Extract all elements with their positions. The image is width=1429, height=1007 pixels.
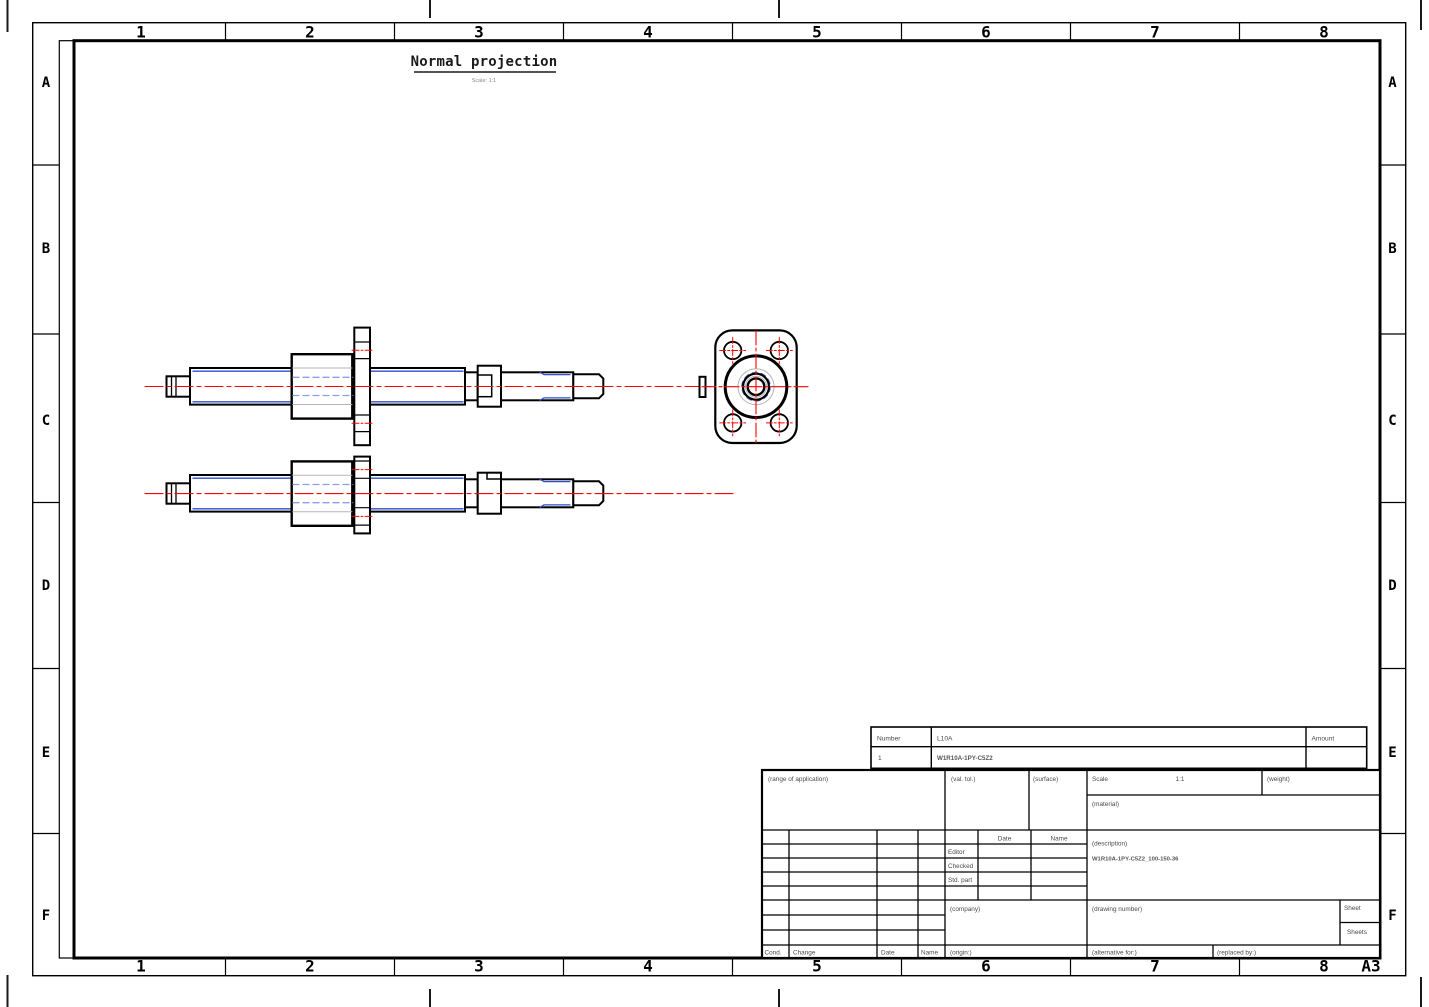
surface-label: (surface)	[1033, 776, 1058, 783]
nut-flange	[354, 457, 370, 534]
parts-col-name: L10A	[937, 736, 953, 743]
part-number: 1	[878, 755, 882, 762]
view-title: Normal projection Scale: 1:1	[411, 54, 558, 84]
zone-col-label: 8	[1319, 23, 1329, 42]
zone-row-label: C	[42, 413, 50, 429]
date-header: Date	[998, 836, 1012, 843]
zone-row-label: D	[42, 578, 50, 594]
scale-label: Scale	[1092, 776, 1108, 783]
title-block: (range of application) (val. tol.) (surf…	[762, 770, 1380, 958]
company-label: (company)	[950, 906, 980, 913]
sheets-label: Sheets	[1347, 929, 1367, 936]
zone-col-label: 7	[1150, 23, 1160, 42]
zone-row-label: A	[42, 75, 51, 91]
sheet-label: Sheet	[1344, 905, 1361, 912]
val-tol-label: (val. tol.)	[951, 776, 976, 783]
projection-views	[145, 328, 810, 534]
alternative-for-label: (alternative for:)	[1092, 950, 1137, 957]
zone-col-label: 4	[643, 23, 653, 42]
checked-label: Checked	[948, 863, 974, 870]
zone-row-label: B	[42, 241, 50, 257]
cond-header: Cond.	[765, 950, 782, 957]
side-view-2[interactable]	[145, 457, 735, 534]
zone-col-label: 3	[474, 23, 484, 42]
zone-row-label: F	[42, 908, 50, 924]
zone-col-label: 2	[305, 23, 315, 42]
zone-col-label: 5	[812, 23, 822, 42]
zone-row-label: E	[42, 745, 50, 761]
parts-col-amount: Amount	[1312, 736, 1335, 743]
side-view-1[interactable]	[145, 328, 710, 446]
zone-row-label: D	[1388, 578, 1396, 594]
std-part-label: Std. part	[948, 877, 972, 884]
material-label: (material)	[1092, 801, 1119, 808]
zone-row-label: F	[1388, 908, 1396, 924]
zone-col-label: 6	[981, 23, 991, 42]
scale-value: 1:1	[1176, 776, 1185, 783]
date-col-header: Date	[881, 950, 895, 957]
range-of-application-label: (range of application)	[768, 776, 828, 783]
name-header: Name	[1050, 836, 1067, 843]
view-title-caption: Scale: 1:1	[472, 78, 496, 84]
part-name: W1R10A-1PY-C5Z2	[937, 755, 993, 762]
sheet-canvas: 1 2 3 4 5 6 7 8 1 2 3 4 5 6 7 8 A B C D …	[0, 0, 1429, 1007]
zone-col-label: 1	[136, 23, 146, 42]
drawing-sheet: 1 2 3 4 5 6 7 8 1 2 3 4 5 6 7 8 A B C D …	[0, 0, 1429, 1007]
zone-row-label: A	[1388, 75, 1397, 91]
editor-label: Editor	[948, 849, 966, 856]
description-value: W1R10A-1PY-C5Z2_100-150-36	[1092, 857, 1179, 863]
change-header: Change	[793, 950, 816, 957]
zone-row-label: B	[1388, 241, 1396, 257]
replaced-by-label: (replaced by:)	[1217, 950, 1256, 957]
name-col-header: Name	[921, 950, 938, 957]
drawing-number-label: (drawing number)	[1092, 906, 1142, 913]
zone-row-label: E	[1388, 745, 1396, 761]
weight-label: (weight)	[1267, 776, 1290, 783]
view-title-text: Normal projection	[411, 54, 558, 70]
parts-list: Number L10A Amount 1 W1R10A-1PY-C5Z2	[871, 727, 1367, 768]
description-label: (description)	[1092, 841, 1127, 848]
front-view[interactable]	[700, 330, 811, 443]
origin-label: (origin:)	[950, 950, 972, 957]
zone-row-label: C	[1388, 413, 1396, 429]
parts-col-number: Number	[877, 736, 901, 743]
